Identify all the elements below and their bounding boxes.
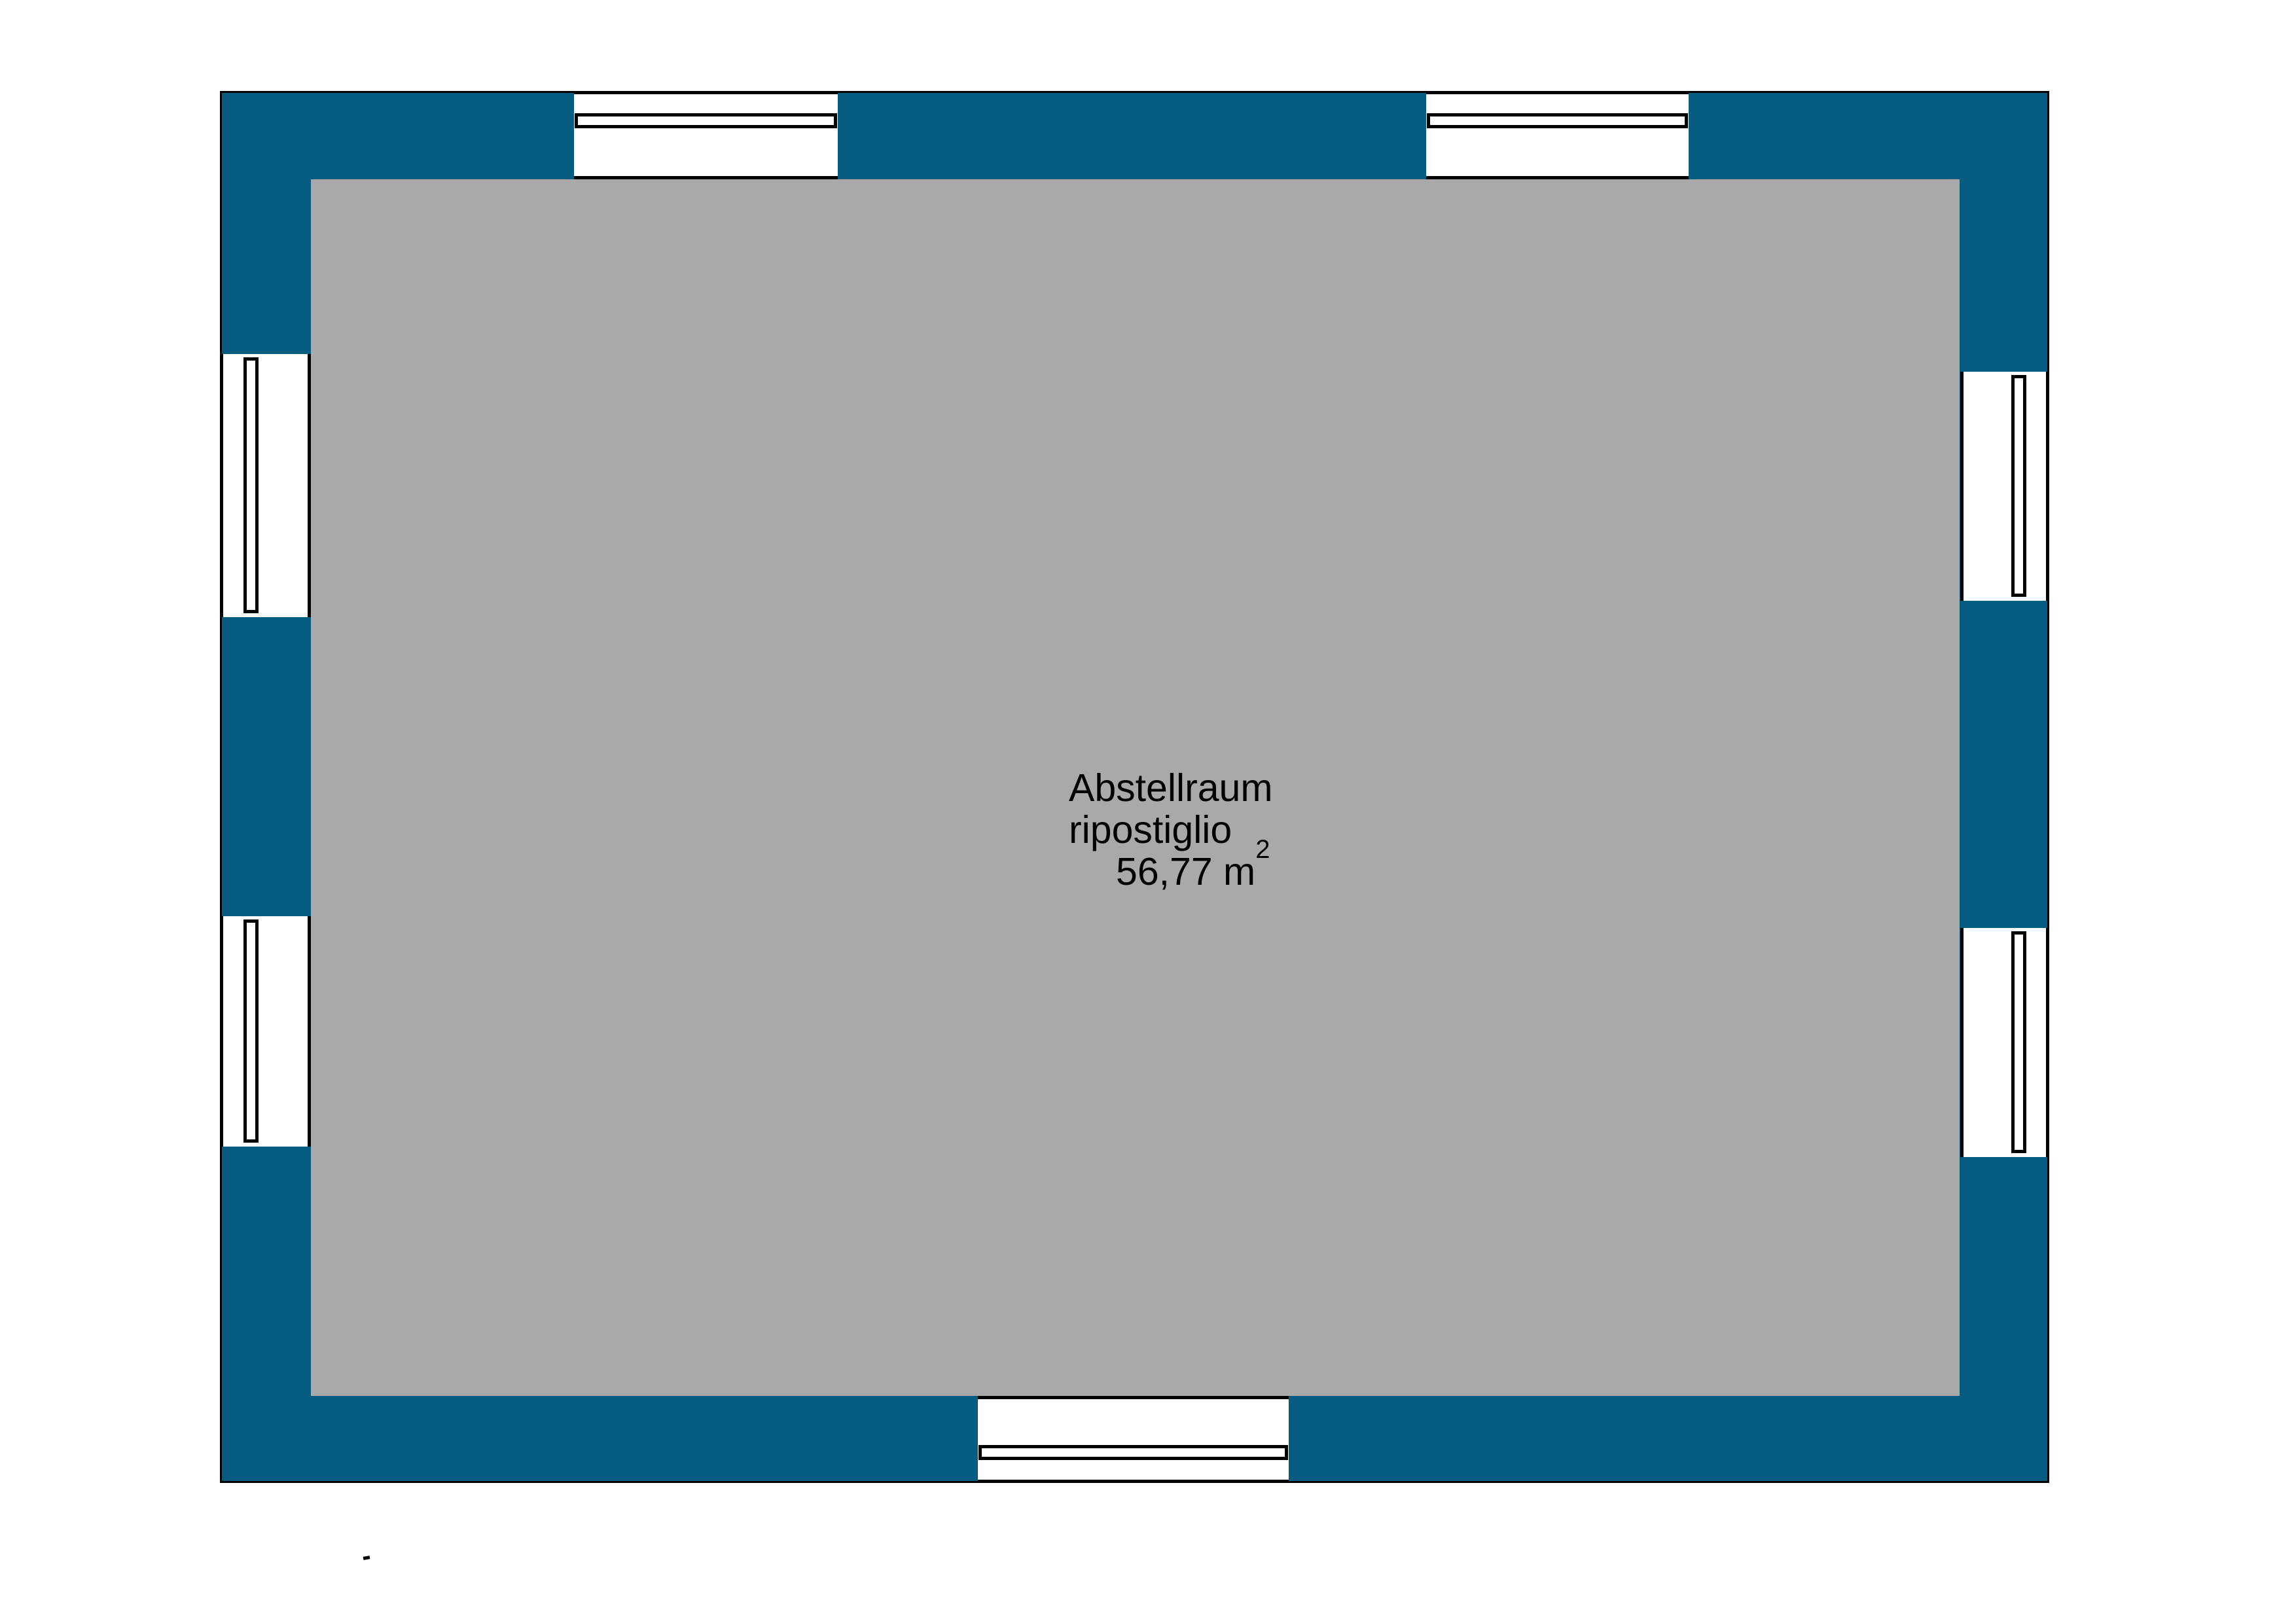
window-sash bbox=[2011, 375, 2026, 597]
window-inner-face-line bbox=[1426, 176, 1689, 179]
window-inner-face-line bbox=[1960, 372, 1964, 601]
window-inner-face-line bbox=[1960, 928, 1964, 1157]
room-area-value: 56,77 m bbox=[1116, 850, 1255, 893]
window-left-1 bbox=[220, 354, 311, 617]
window-bottom-1 bbox=[978, 1396, 1289, 1483]
window-sash bbox=[1427, 113, 1688, 128]
window-top-1 bbox=[574, 91, 838, 179]
room-name-it: ripostiglio bbox=[1069, 809, 1273, 851]
room-area: 56,77 m2 bbox=[1069, 851, 1273, 893]
room-name-de: Abstellraum bbox=[1069, 767, 1273, 809]
window-inner-face-line bbox=[308, 916, 311, 1147]
window-outer-face-line bbox=[220, 354, 223, 617]
window-sash bbox=[978, 1445, 1288, 1460]
window-sash bbox=[575, 113, 837, 128]
room-area-superscript: 2 bbox=[1255, 835, 1270, 864]
window-right-1 bbox=[1960, 372, 2049, 601]
window-sash bbox=[243, 919, 259, 1143]
window-left-2 bbox=[220, 916, 311, 1147]
window-outer-face-line bbox=[220, 916, 223, 1147]
window-outer-face-line bbox=[2046, 372, 2049, 601]
window-right-2 bbox=[1960, 928, 2049, 1157]
window-sash bbox=[2011, 931, 2026, 1153]
window-outer-face-line bbox=[574, 91, 838, 94]
window-inner-face-line bbox=[978, 1396, 1289, 1399]
window-inner-face-line bbox=[574, 176, 838, 179]
window-top-2 bbox=[1426, 91, 1689, 179]
window-outer-face-line bbox=[2046, 928, 2049, 1157]
window-sash bbox=[243, 357, 259, 613]
window-inner-face-line bbox=[308, 354, 311, 617]
artifact-mark bbox=[363, 1556, 370, 1560]
window-outer-face-line bbox=[978, 1480, 1289, 1483]
floor-plan: Abstellraum ripostiglio 56,77 m2 bbox=[0, 0, 2296, 1623]
window-outer-face-line bbox=[1426, 91, 1689, 94]
room-label: Abstellraum ripostiglio 56,77 m2 bbox=[1069, 767, 1273, 893]
